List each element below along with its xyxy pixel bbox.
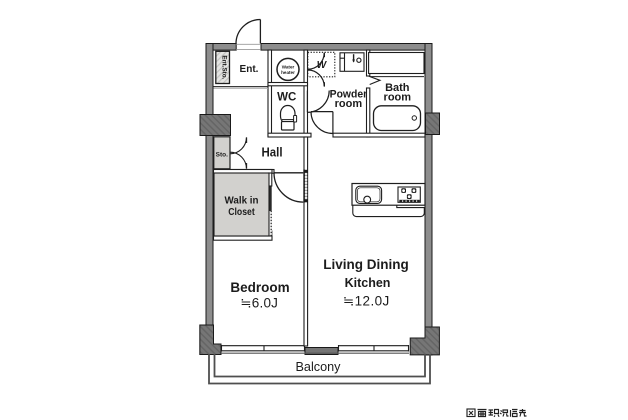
svg-text:Kitchen: Kitchen bbox=[345, 276, 391, 290]
svg-text:room: room bbox=[335, 98, 363, 110]
svg-text:Ent.Sto.: Ent.Sto. bbox=[221, 55, 228, 79]
svg-text:≒12.0J: ≒12.0J bbox=[343, 293, 390, 308]
svg-text:Sto.: Sto. bbox=[216, 152, 228, 159]
svg-text:Ent.: Ent. bbox=[240, 64, 259, 75]
svg-text:Closet: Closet bbox=[228, 206, 255, 218]
svg-text:≒6.0J: ≒6.0J bbox=[240, 296, 278, 311]
svg-text:WC: WC bbox=[277, 92, 296, 104]
svg-text:Bedroom: Bedroom bbox=[230, 280, 289, 295]
svg-text:Living Dining: Living Dining bbox=[323, 257, 409, 272]
svg-text:Hall: Hall bbox=[262, 145, 283, 160]
svg-text:Balcony: Balcony bbox=[296, 359, 342, 374]
svg-text:room: room bbox=[384, 92, 412, 104]
svg-text:heater: heater bbox=[281, 70, 295, 75]
svg-text:Walk in: Walk in bbox=[225, 195, 259, 207]
